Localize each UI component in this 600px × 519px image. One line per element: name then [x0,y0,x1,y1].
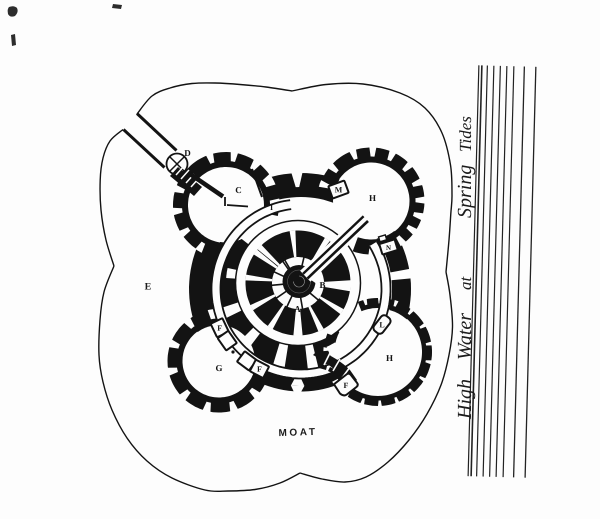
svg-text:D: D [184,148,191,158]
svg-text:N: N [386,244,391,252]
svg-text:F: F [257,365,262,374]
svg-text:A: A [294,304,301,314]
svg-text:F: F [217,324,222,333]
svg-text:E: E [145,281,152,292]
svg-text:M: M [335,185,343,194]
svg-text:F: F [344,381,349,390]
svg-text:B: B [319,280,325,290]
svg-text:H: H [386,353,393,363]
svg-text:C: C [235,185,242,195]
svg-text:H: H [369,193,376,203]
svg-text:Tides: Tides [456,116,475,152]
svg-text:MOAT: MOAT [278,427,317,439]
svg-text:Water: Water [454,313,476,360]
svg-text:G: G [215,363,222,373]
svg-text:Spring: Spring [454,165,476,218]
svg-text:High: High [454,379,476,420]
svg-text:I: I [270,203,273,212]
svg-text:L: L [379,320,384,329]
svg-text:at: at [456,276,475,291]
